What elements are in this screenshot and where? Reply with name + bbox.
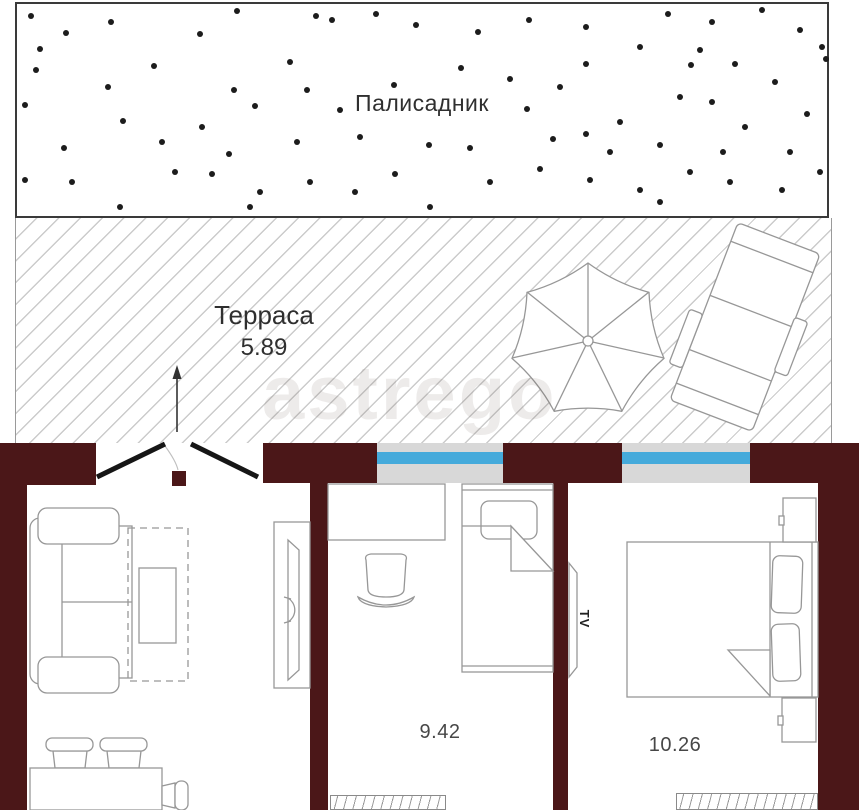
nightstand-icon <box>778 698 816 742</box>
tv-stand-icon <box>274 522 310 688</box>
desk-chair-icon <box>358 554 414 607</box>
coffee-table-icon <box>139 568 176 643</box>
sun-lounger-icon <box>657 218 832 437</box>
single-bed-icon <box>462 484 553 672</box>
double-door-icon <box>97 444 258 477</box>
terrace-exit-arrow-icon <box>173 365 182 432</box>
tv-icon <box>569 563 577 677</box>
umbrella-icon <box>512 263 664 411</box>
nightstand-icon <box>779 498 816 542</box>
sofa-icon <box>30 508 132 693</box>
dining-table-icon <box>30 738 188 810</box>
plan-linework <box>0 0 859 810</box>
floor-plan: Палисадник Терраса 5.89 <box>0 0 859 810</box>
desk-icon <box>328 484 445 540</box>
double-bed-icon <box>627 542 818 697</box>
